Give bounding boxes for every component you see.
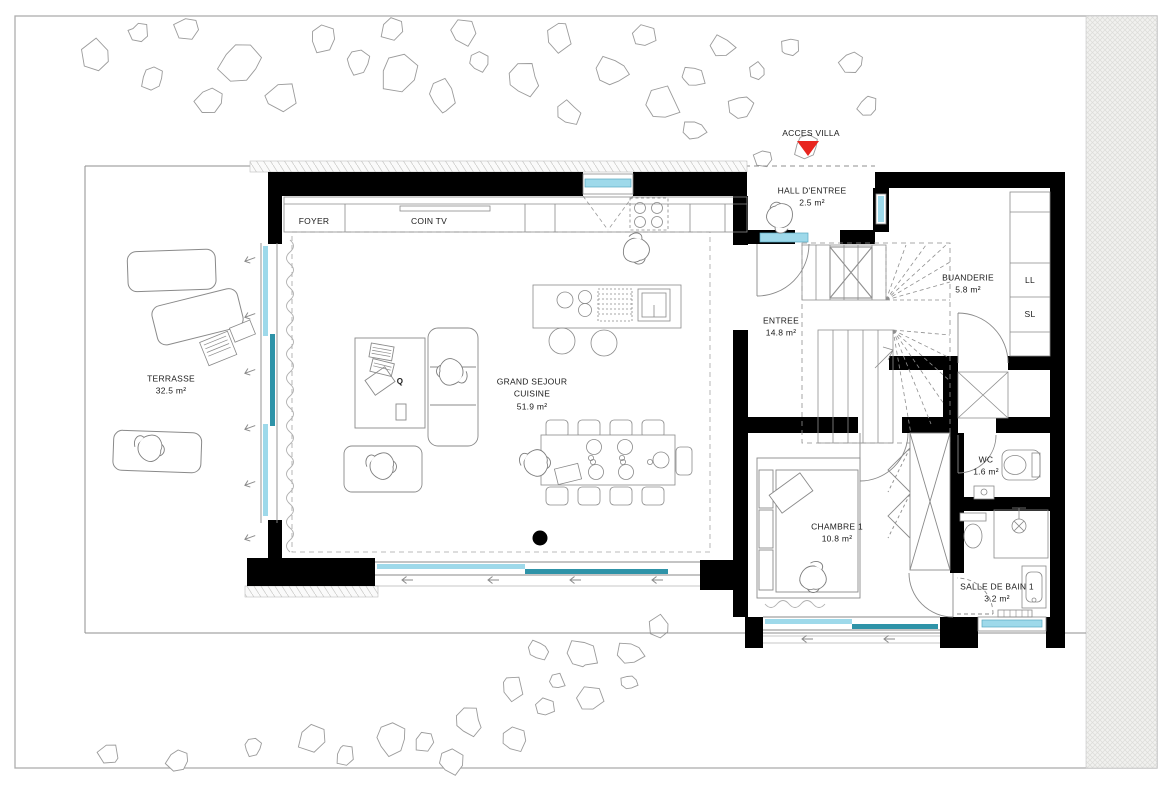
hand-basin	[974, 486, 994, 499]
zone-label-foyer: FOYER	[299, 215, 330, 227]
dining-table	[541, 435, 675, 485]
appliance-label-washer: LL	[1025, 274, 1035, 286]
room-label-chambre: CHAMBRE 110.8 m²	[811, 521, 863, 546]
dining-chair	[546, 487, 568, 505]
access-villa-label: ACCES VILLA	[782, 127, 840, 139]
toilet	[1002, 450, 1040, 480]
coffee-table	[355, 338, 425, 428]
stepping-stone	[782, 39, 799, 55]
toilet-tank	[960, 513, 986, 521]
floor-plan-page: ACCES VILLA HALL D'ENTREE2.5 m² FOYER CO…	[0, 0, 1170, 785]
dining-chair	[676, 447, 692, 475]
structural-column	[533, 531, 548, 546]
dining-chair	[642, 487, 664, 505]
appliance-label-dryer: SL	[1025, 308, 1036, 320]
room-label-terrasse: TERRASSE32.5 m²	[147, 373, 195, 398]
sofa	[428, 328, 478, 446]
neighbor-hatch-band	[1086, 16, 1157, 768]
dining-chair	[610, 487, 632, 505]
room-label-entree: ENTREE14.8 m²	[763, 315, 799, 340]
room-label-sdb: SALLE DE BAIN 13.2 m²	[960, 581, 1034, 606]
dining-chair	[578, 487, 600, 505]
room-label-buanderie: BUANDERIE5.8 m²	[942, 272, 994, 297]
entry-closet	[958, 372, 1008, 418]
stepping-stone	[440, 749, 464, 775]
room-label-hall: HALL D'ENTREE2.5 m²	[778, 185, 847, 210]
sun-lounger	[127, 249, 216, 292]
magazine-logo: Q	[397, 376, 403, 388]
room-label-wc: WC1.6 m²	[973, 454, 999, 479]
zone-label-coin-tv: COIN TV	[411, 215, 447, 227]
room-label-sejour: GRAND SEJOURCUISINE51.9 m²	[497, 376, 568, 413]
